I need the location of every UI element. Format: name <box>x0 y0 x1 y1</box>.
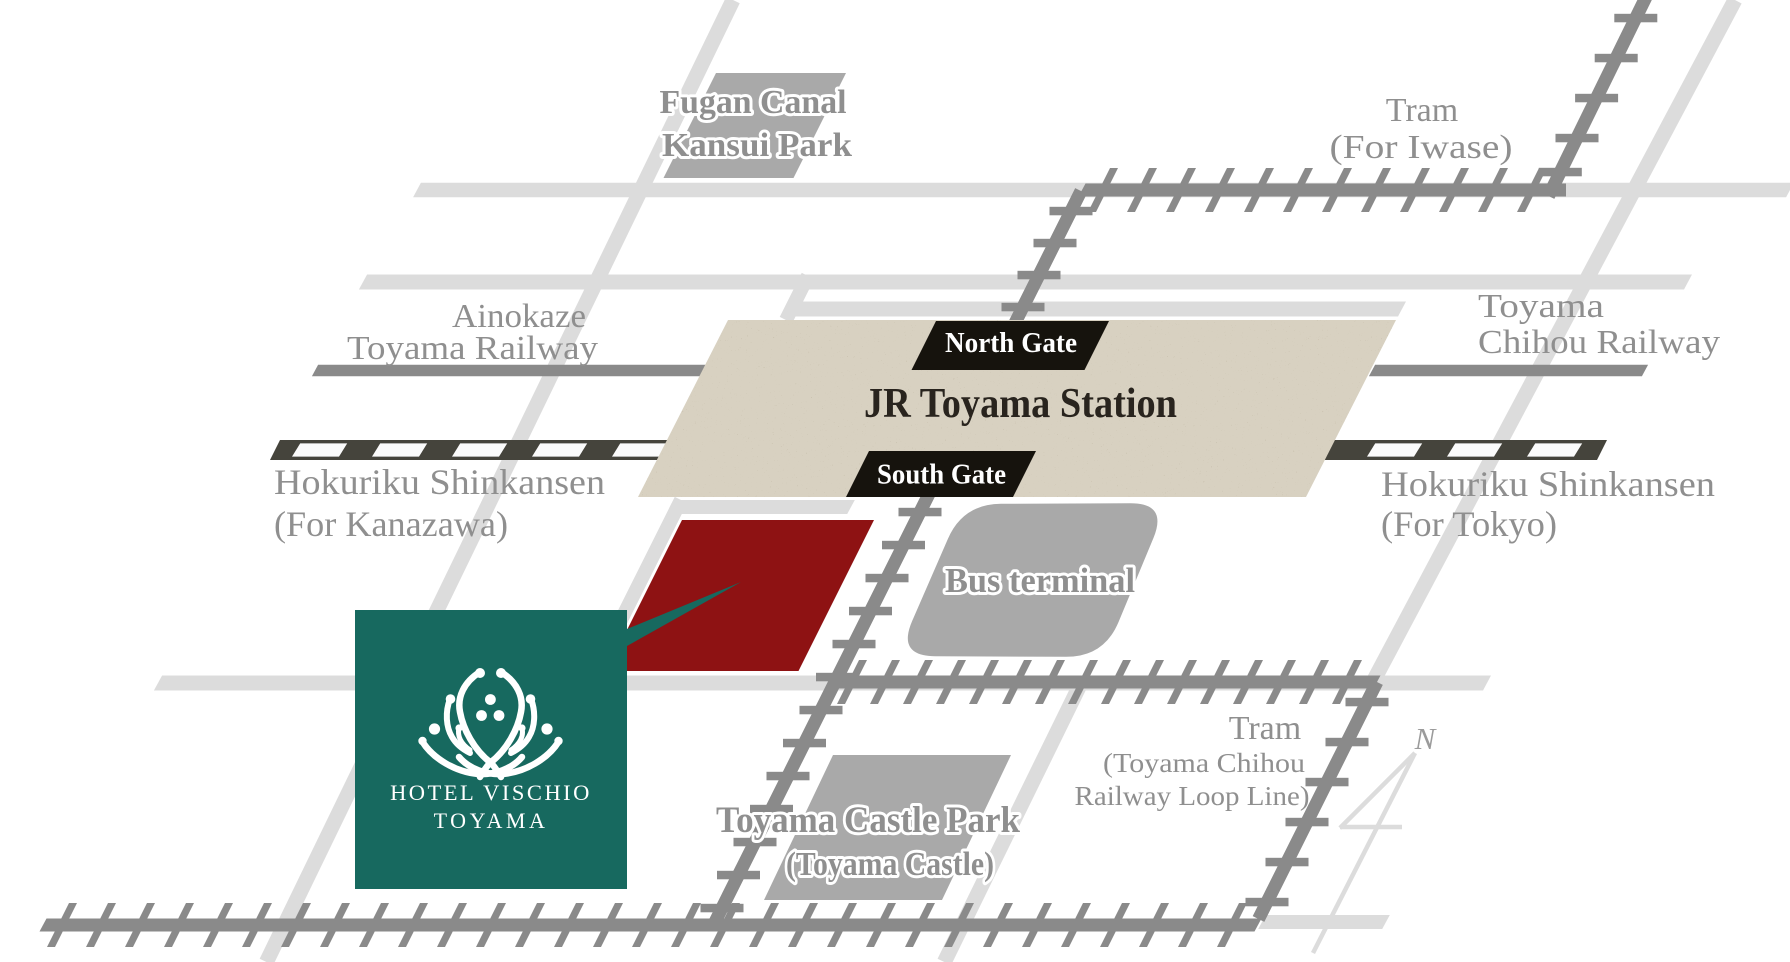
svg-text:(For Iwase): (For Iwase) <box>1330 129 1513 166</box>
svg-text:Toyama Railway: Toyama Railway <box>347 330 598 367</box>
svg-text:(For Kanazawa): (For Kanazawa) <box>274 504 508 544</box>
svg-text:Hokuriku Shinkansen: Hokuriku Shinkansen <box>274 462 605 502</box>
svg-text:Tram: Tram <box>1386 92 1458 129</box>
svg-text:HOTEL VISCHIO: HOTEL VISCHIO <box>390 780 592 805</box>
svg-text:Toyama: Toyama <box>1478 288 1604 325</box>
svg-text:(For Tokyo): (For Tokyo) <box>1381 504 1557 544</box>
svg-text:North Gate: North Gate <box>945 327 1077 359</box>
svg-text:JR Toyama Station: JR Toyama Station <box>864 381 1177 427</box>
svg-text:Toyama Castle Park: Toyama Castle Park <box>716 800 1020 841</box>
svg-text:TOYAMA: TOYAMA <box>434 808 549 833</box>
svg-text:Kansui Park: Kansui Park <box>662 127 852 164</box>
svg-text:Fugan Canal: Fugan Canal <box>660 84 847 121</box>
svg-text:Railway Loop Line): Railway Loop Line) <box>1075 781 1310 811</box>
svg-text:(Toyama Castle): (Toyama Castle) <box>786 846 994 883</box>
svg-text:Chihou Railway: Chihou Railway <box>1478 324 1720 361</box>
svg-text:South Gate: South Gate <box>877 459 1006 491</box>
svg-text:Tram: Tram <box>1229 710 1301 747</box>
svg-text:Bus terminal: Bus terminal <box>945 561 1135 600</box>
svg-text:(Toyama Chihou: (Toyama Chihou <box>1103 748 1306 778</box>
svg-text:N: N <box>1414 721 1438 756</box>
svg-text:Hokuriku Shinkansen: Hokuriku Shinkansen <box>1381 464 1715 504</box>
